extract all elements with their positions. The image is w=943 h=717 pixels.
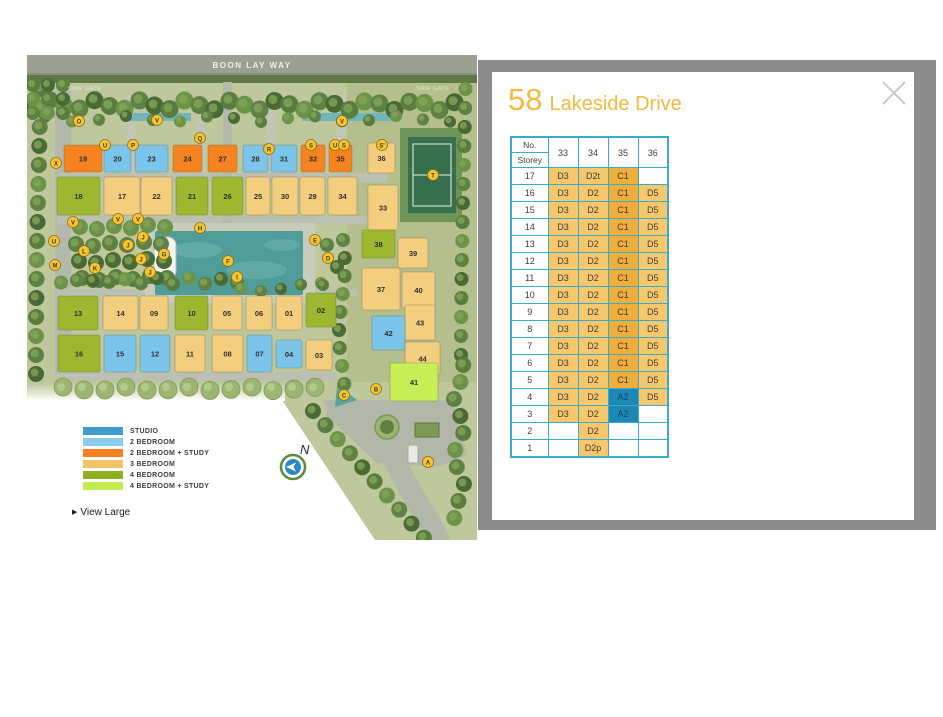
building-number: 05 <box>223 309 231 318</box>
unit-cell-empty <box>638 440 668 458</box>
building-04[interactable]: 04 <box>276 340 302 368</box>
building-number: 29 <box>308 192 316 201</box>
legend-label: 3 BEDROOM <box>130 461 175 468</box>
facility-marker-U: U <box>100 140 111 151</box>
building-33[interactable]: 33 <box>368 185 398 230</box>
building-15[interactable]: 15 <box>104 335 136 372</box>
facility-marker-J: J <box>145 267 156 278</box>
road-kerb <box>27 73 477 75</box>
unit-cell-C1[interactable]: C1 <box>608 355 638 372</box>
storey-row-1: 1D2p <box>511 440 668 458</box>
facility-marker-L: L <box>79 246 90 257</box>
unit-cell-C1[interactable]: C1 <box>608 185 638 202</box>
side-gate-right-label: SIDE GATE <box>416 86 449 92</box>
facility-marker-A: A <box>423 457 434 468</box>
column-header-33: 33 <box>548 137 578 168</box>
building-05[interactable]: 05 <box>212 296 242 330</box>
building-02[interactable]: 02 <box>306 293 336 327</box>
storey-number: 3 <box>511 406 548 423</box>
building-40[interactable]: 40 <box>402 272 435 308</box>
facility-marker-V: V <box>337 116 348 127</box>
building-number: 37 <box>377 285 385 294</box>
legend-label: 4 BEDROOM <box>130 472 175 479</box>
building-number: 32 <box>309 154 317 163</box>
building-number: 42 <box>384 329 392 338</box>
facility-marker-J: J <box>138 232 149 243</box>
facility-marker-S: S <box>339 140 350 151</box>
building-number: 26 <box>223 192 231 201</box>
storey-number: 9 <box>511 304 548 321</box>
building-34[interactable]: 34 <box>328 177 357 215</box>
storey-row-13: 13D3D2C1D5 <box>511 236 668 253</box>
guard-house <box>415 423 439 437</box>
building-number: 15 <box>116 349 124 358</box>
building-number: 08 <box>223 349 231 358</box>
storey-row-11: 11D3D2C1D5 <box>511 270 668 287</box>
building-number: 39 <box>409 249 417 258</box>
unit-cell-D2[interactable]: D2 <box>578 372 608 389</box>
legend-swatch <box>83 449 123 457</box>
legend-item: STUDIO <box>83 426 209 436</box>
unit-cell-D5[interactable]: D5 <box>638 372 668 389</box>
building-12[interactable]: 12 <box>140 335 170 372</box>
building-38[interactable]: 38 <box>362 230 395 258</box>
svg-text:K: K <box>93 266 98 272</box>
column-header-34: 34 <box>578 137 608 168</box>
svg-text:J: J <box>141 235 144 241</box>
storey-number: 1 <box>511 440 548 458</box>
facility-marker-H: H <box>195 223 206 234</box>
legend-swatch <box>83 471 123 479</box>
building-number: 27 <box>218 154 226 163</box>
unit-cell-C1[interactable]: C1 <box>608 321 638 338</box>
building-27[interactable]: 27 <box>208 145 237 172</box>
facility-marker-P: P <box>128 140 139 151</box>
header-no: No. <box>511 137 548 153</box>
svg-text:J: J <box>148 270 151 276</box>
unit-cell-D3[interactable]: D3 <box>548 219 578 236</box>
storey-number: 4 <box>511 389 548 406</box>
svg-text:B: B <box>374 387 379 393</box>
legend-label: STUDIO <box>130 428 158 435</box>
unit-cell-D5[interactable]: D5 <box>638 389 668 406</box>
unit-cell-D2[interactable]: D2 <box>578 270 608 287</box>
unit-cell-empty <box>548 423 578 440</box>
unit-cell-C1[interactable]: C1 <box>608 168 638 185</box>
unit-cell-empty <box>638 168 668 185</box>
unit-cell-D2[interactable]: D2 <box>578 406 608 423</box>
svg-text:C: C <box>342 393 347 399</box>
building-25[interactable]: 25 <box>246 177 270 215</box>
popup-frame: 58Lakeside Drive No.33343536Storey17D3D2… <box>478 60 936 530</box>
unit-cell-C1[interactable]: C1 <box>608 372 638 389</box>
unit-cell-D3[interactable]: D3 <box>548 168 578 185</box>
building-number: 14 <box>116 309 125 318</box>
building-07[interactable]: 07 <box>247 335 272 372</box>
site-plan-map: BOON LAY WAY <box>27 55 477 540</box>
facility-marker-J: J <box>136 254 147 265</box>
storey-row-12: 12D3D2C1D5 <box>511 253 668 270</box>
unit-cell-D5[interactable]: D5 <box>638 304 668 321</box>
unit-cell-D5[interactable]: D5 <box>638 219 668 236</box>
legend-swatch <box>83 427 123 435</box>
unit-popup: 58Lakeside Drive No.33343536Storey17D3D2… <box>492 72 914 520</box>
unit-cell-A2[interactable]: A2 <box>608 389 638 406</box>
storey-number: 13 <box>511 236 548 253</box>
building-number: 44 <box>418 354 427 363</box>
building-24[interactable]: 24 <box>173 145 202 172</box>
storey-row-9: 9D3D2C1D5 <box>511 304 668 321</box>
legend-item: 3 BEDROOM <box>83 459 209 469</box>
building-06[interactable]: 06 <box>246 296 272 330</box>
storey-number: 8 <box>511 321 548 338</box>
triangle-icon: ▶ <box>72 509 77 516</box>
facility-marker-D: D <box>323 253 334 264</box>
storey-row-10: 10D3D2C1D5 <box>511 287 668 304</box>
svg-text:U: U <box>103 143 107 149</box>
unit-cell-D5[interactable]: D5 <box>638 202 668 219</box>
facility-marker-U: U <box>49 236 60 247</box>
building-41[interactable]: 41 <box>390 363 438 401</box>
unit-cell-D5[interactable]: D5 <box>638 185 668 202</box>
building-11[interactable]: 11 <box>175 335 205 372</box>
building-number: 01 <box>285 309 293 318</box>
building-23[interactable]: 23 <box>135 145 168 172</box>
unit-cell-D3[interactable]: D3 <box>548 355 578 372</box>
unit-cell-D2[interactable]: D2 <box>578 338 608 355</box>
unit-cell-D3[interactable]: D3 <box>548 287 578 304</box>
unit-cell-D5[interactable]: D5 <box>638 287 668 304</box>
building-number: 04 <box>285 350 294 359</box>
unit-cell-D2[interactable]: D2 <box>578 355 608 372</box>
building-number: 20 <box>113 154 121 163</box>
building-10[interactable]: 10 <box>175 296 208 330</box>
svg-text:E: E <box>313 238 317 244</box>
unit-type-legend: STUDIO2 BEDROOM2 BEDROOM + STUDY3 BEDROO… <box>83 426 209 492</box>
unit-cell-D2p[interactable]: D2p <box>578 440 608 458</box>
building-37[interactable]: 37 <box>362 268 400 310</box>
building-42[interactable]: 42 <box>372 316 405 350</box>
header-storey: Storey <box>511 153 548 168</box>
unit-cell-A2[interactable]: A2 <box>608 406 638 423</box>
unit-cell-D3[interactable]: D3 <box>548 321 578 338</box>
page: BOON LAY WAY <box>0 0 943 717</box>
storey-number: 12 <box>511 253 548 270</box>
storey-row-15: 15D3D2C1D5 <box>511 202 668 219</box>
building-number: 07 <box>255 349 263 358</box>
unit-cell-D2[interactable]: D2 <box>578 321 608 338</box>
unit-cell-D5[interactable]: D5 <box>638 236 668 253</box>
building-21[interactable]: 21 <box>176 177 208 215</box>
building-43[interactable]: 43 <box>405 305 435 340</box>
svg-text:J: J <box>139 257 142 263</box>
hedge <box>27 75 477 83</box>
unit-cell-D2[interactable]: D2 <box>578 304 608 321</box>
legend-item: 4 BEDROOM + STUDY <box>83 481 209 491</box>
svg-text:S': S' <box>379 143 385 149</box>
legend-item: 2 BEDROOM + STUDY <box>83 448 209 458</box>
unit-cell-D5[interactable]: D5 <box>638 270 668 287</box>
building-number: 36 <box>377 154 385 163</box>
car <box>408 445 418 463</box>
unit-cell-D3[interactable]: D3 <box>548 236 578 253</box>
legend-swatch <box>83 482 123 490</box>
svg-text:U: U <box>52 239 56 245</box>
storey-number: 2 <box>511 423 548 440</box>
building-number: 38 <box>374 240 382 249</box>
legend-swatch <box>83 460 123 468</box>
building-01[interactable]: 01 <box>276 296 302 330</box>
building-26[interactable]: 26 <box>212 177 243 215</box>
storey-number: 7 <box>511 338 548 355</box>
building-19[interactable]: 19 <box>64 145 102 172</box>
svg-text:M: M <box>53 263 58 269</box>
unit-cell-D2[interactable]: D2 <box>578 389 608 406</box>
unit-cell-D3[interactable]: D3 <box>548 338 578 355</box>
legend-label: 2 BEDROOM + STUDY <box>130 450 209 457</box>
side-gate-left-label: SIDE GATE <box>68 86 101 92</box>
facility-marker-V: V <box>152 115 163 126</box>
svg-text:V: V <box>155 118 159 124</box>
unit-cell-C1[interactable]: C1 <box>608 338 638 355</box>
building-number: 22 <box>152 192 160 201</box>
building-number: 34 <box>338 192 347 201</box>
unit-cell-empty <box>638 406 668 423</box>
column-header-35: 35 <box>608 137 638 168</box>
unit-cell-D5[interactable]: D5 <box>638 338 668 355</box>
unit-cell-D3[interactable]: D3 <box>548 253 578 270</box>
legend-item: 4 BEDROOM <box>83 470 209 480</box>
building-number: 24 <box>183 154 192 163</box>
building-number: 23 <box>147 154 155 163</box>
column-header-36: 36 <box>638 137 668 168</box>
storey-row-17: 17D3D2tC1 <box>511 168 668 185</box>
unit-cell-empty <box>638 423 668 440</box>
storey-row-2: 2D2 <box>511 423 668 440</box>
street-name: Lakeside Drive <box>549 93 681 115</box>
building-09[interactable]: 09 <box>140 296 168 330</box>
facility-marker-S: S <box>306 140 317 151</box>
facility-marker-G: G <box>159 249 170 260</box>
svg-text:O: O <box>77 119 82 125</box>
storey-row-16: 16D3D2C1D5 <box>511 185 668 202</box>
unit-cell-D3[interactable]: D3 <box>548 406 578 423</box>
unit-cell-D5[interactable]: D5 <box>638 355 668 372</box>
facility-marker-B: B <box>371 384 382 395</box>
facility-marker-F: F <box>223 256 234 267</box>
storey-number: 16 <box>511 185 548 202</box>
unit-cell-D2[interactable]: D2 <box>578 219 608 236</box>
building-number: 30 <box>281 192 289 201</box>
building-22[interactable]: 22 <box>141 177 172 215</box>
unit-cell-C1[interactable]: C1 <box>608 270 638 287</box>
facility-marker-O: O <box>74 116 85 127</box>
svg-text:T: T <box>431 173 435 179</box>
facility-marker-T: T <box>428 170 439 181</box>
road-label: BOON LAY WAY <box>212 61 291 70</box>
svg-text:S: S <box>342 143 346 149</box>
unit-cell-D3[interactable]: D3 <box>548 202 578 219</box>
facility-marker-K: K <box>90 263 101 274</box>
building-number: 40 <box>414 286 422 295</box>
svg-text:Q: Q <box>198 136 203 142</box>
svg-text:S: S <box>309 143 313 149</box>
svg-text:H: H <box>198 226 202 232</box>
building-number: 25 <box>254 192 262 201</box>
building-30[interactable]: 30 <box>272 177 298 215</box>
facility-marker-I: I <box>232 272 243 283</box>
unit-cell-D2t[interactable]: D2t <box>578 168 608 185</box>
building-number: 11 <box>186 349 194 358</box>
legend-swatch <box>83 438 123 446</box>
unit-cell-D3[interactable]: D3 <box>548 304 578 321</box>
building-number: 21 <box>188 192 196 201</box>
unit-cell-D2[interactable]: D2 <box>578 287 608 304</box>
storey-row-5: 5D3D2C1D5 <box>511 372 668 389</box>
svg-text:F: F <box>226 259 230 265</box>
svg-text:X: X <box>54 161 58 167</box>
storey-row-3: 3D3D2A2 <box>511 406 668 423</box>
building-number: 41 <box>410 378 418 387</box>
storey-row-4: 4D3D2A2D5 <box>511 389 668 406</box>
storey-row-14: 14D3D2C1D5 <box>511 219 668 236</box>
svg-text:D: D <box>326 256 331 262</box>
storey-table: No.33343536Storey17D3D2tC116D3D2C1D515D3… <box>510 136 669 458</box>
facility-marker-R: R <box>264 144 275 155</box>
legend-label: 2 BEDROOM <box>130 439 175 446</box>
unit-cell-C1[interactable]: C1 <box>608 304 638 321</box>
unit-cell-empty <box>608 423 638 440</box>
building-number: 10 <box>187 309 195 318</box>
building-18[interactable]: 18 <box>57 177 100 215</box>
building-number: 13 <box>74 309 82 318</box>
building-number: 28 <box>251 154 259 163</box>
facility-marker-V: V <box>113 214 124 225</box>
unit-cell-C1[interactable]: C1 <box>608 219 638 236</box>
building-number: 12 <box>151 349 159 358</box>
building-number: 19 <box>79 154 87 163</box>
facility-marker-J: J <box>123 240 134 251</box>
compass-n-label: N <box>300 442 310 457</box>
storey-number: 10 <box>511 287 548 304</box>
facility-marker-V: V <box>68 217 79 228</box>
unit-cell-D2[interactable]: D2 <box>578 185 608 202</box>
view-large-label: View Large <box>80 507 130 518</box>
close-button[interactable] <box>879 78 909 108</box>
unit-cell-D5[interactable]: D5 <box>638 253 668 270</box>
popup-title: 58Lakeside Drive <box>508 82 682 118</box>
view-large-link[interactable]: ▶View Large <box>72 507 130 518</box>
building-number: 06 <box>255 309 263 318</box>
building-39[interactable]: 39 <box>398 238 428 268</box>
unit-cell-empty <box>548 440 578 458</box>
svg-text:L: L <box>82 249 86 255</box>
legend-item: 2 BEDROOM <box>83 437 209 447</box>
svg-text:V: V <box>71 220 75 226</box>
storey-number: 17 <box>511 168 548 185</box>
building-29[interactable]: 29 <box>300 177 325 215</box>
unit-cell-C1[interactable]: C1 <box>608 202 638 219</box>
facility-marker-X: X <box>51 158 62 169</box>
svg-text:G: G <box>162 252 167 258</box>
building-number: 18 <box>74 192 82 201</box>
building-number: 31 <box>280 154 288 163</box>
storey-number: 5 <box>511 372 548 389</box>
storey-number: 11 <box>511 270 548 287</box>
building-08[interactable]: 08 <box>212 335 243 372</box>
unit-cell-D3[interactable]: D3 <box>548 389 578 406</box>
unit-cell-empty <box>608 440 638 458</box>
storey-number: 6 <box>511 355 548 372</box>
building-03[interactable]: 03 <box>306 340 332 370</box>
storey-row-8: 8D3D2C1D5 <box>511 321 668 338</box>
unit-cell-D3[interactable]: D3 <box>548 270 578 287</box>
facility-marker-E: E <box>310 235 321 246</box>
unit-cell-D5[interactable]: D5 <box>638 321 668 338</box>
building-number: 03 <box>315 351 323 360</box>
unit-cell-D2[interactable]: D2 <box>578 202 608 219</box>
building-16[interactable]: 16 <box>58 335 100 372</box>
building-number: 35 <box>336 154 344 163</box>
building-number: 43 <box>416 318 424 327</box>
storey-row-6: 6D3D2C1D5 <box>511 355 668 372</box>
legend-label: 4 BEDROOM + STUDY <box>130 483 209 490</box>
building-17[interactable]: 17 <box>104 177 140 215</box>
svg-text:U: U <box>333 143 337 149</box>
building-number: 09 <box>150 309 158 318</box>
unit-cell-D2[interactable]: D2 <box>578 253 608 270</box>
building-number: 33 <box>379 203 387 212</box>
svg-text:J: J <box>126 243 129 249</box>
facility-marker-Q: Q <box>195 133 206 144</box>
svg-text:V: V <box>340 119 344 125</box>
unit-cell-D2[interactable]: D2 <box>578 236 608 253</box>
building-number: 17 <box>118 192 126 201</box>
close-icon <box>879 78 909 108</box>
facility-marker-C: C <box>339 390 350 401</box>
unit-cell-D2[interactable]: D2 <box>578 423 608 440</box>
block-number: 58 <box>508 82 542 117</box>
storey-row-7: 7D3D2C1D5 <box>511 338 668 355</box>
svg-text:R: R <box>267 147 272 153</box>
unit-cell-C1[interactable]: C1 <box>608 236 638 253</box>
facility-marker-M: M <box>50 260 61 271</box>
building-number: 02 <box>317 306 325 315</box>
storey-number: 15 <box>511 202 548 219</box>
svg-text:V: V <box>116 217 120 223</box>
building-31[interactable]: 31 <box>271 145 297 172</box>
facility-marker-S': S' <box>377 140 388 151</box>
building-14[interactable]: 14 <box>103 296 138 330</box>
unit-cell-C1[interactable]: C1 <box>608 287 638 304</box>
unit-cell-D3[interactable]: D3 <box>548 185 578 202</box>
svg-text:P: P <box>131 143 135 149</box>
storey-number: 14 <box>511 219 548 236</box>
building-number: 16 <box>75 349 83 358</box>
building-13[interactable]: 13 <box>58 296 98 330</box>
svg-text:A: A <box>426 460 431 466</box>
facility-marker-V: V <box>133 214 144 225</box>
unit-cell-D3[interactable]: D3 <box>548 372 578 389</box>
svg-text:V: V <box>136 217 140 223</box>
unit-cell-C1[interactable]: C1 <box>608 253 638 270</box>
